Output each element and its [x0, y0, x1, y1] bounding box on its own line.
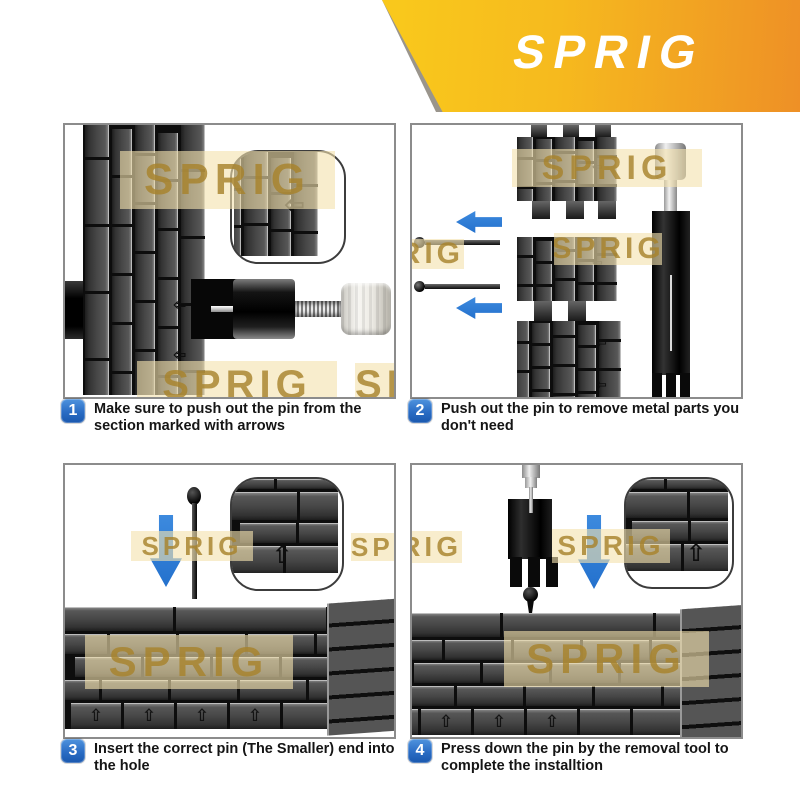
engraved-arrow-icon: ⇧ [272, 543, 292, 567]
link-remover-threaded-shaft [295, 301, 341, 317]
step-1-text: Make sure to push out the pin from the s… [94, 399, 396, 435]
pin-pusher-needle [529, 487, 533, 513]
band-angled-section [327, 598, 396, 735]
pin-pusher-prong [680, 373, 690, 397]
watermark: SPRIG [355, 363, 396, 399]
instruction-infographic: SPRIG ⇦ ⇦ ⇦ SPRIG SPRIG SPRIG [0, 0, 800, 800]
pin-pusher-prong [652, 373, 662, 397]
watermark: SPRIG [410, 239, 464, 269]
step-4-caption: 4 Press down the pin by the removal tool… [408, 739, 743, 775]
watermark: SPRIG [552, 529, 670, 563]
step-2-panel: ⇦ ⇦ ⇦ ⇦ SPRIG SPRI [410, 123, 743, 399]
watermark: SPRIG [120, 151, 335, 209]
link-remover-knob [341, 283, 391, 335]
blue-arrow-left-icon [456, 297, 502, 319]
brand-logo: SPRIG [509, 24, 711, 79]
engraved-arrow-icon: ⇦ [596, 379, 607, 392]
engraved-arrow-icon: ⇧ [686, 541, 706, 565]
pin-stem [425, 284, 500, 289]
step-4-text: Press down the pin by the removal tool t… [441, 739, 743, 775]
step-2-badge: 2 [408, 399, 432, 423]
watermark: SPRIG [351, 533, 396, 561]
step-4-panel: ⇧ ⇧⇧⇧⇧ SPRIG SPRIG SPRIG [410, 463, 743, 739]
step-4-badge: 4 [408, 739, 432, 763]
step-2-text: Push out the pin to remove metal parts y… [441, 399, 743, 435]
step-3-caption: 3 Insert the correct pin (The Smaller) e… [61, 739, 396, 775]
step-3-text: Insert the correct pin (The Smaller) end… [94, 739, 396, 775]
watermark: SPRIG [504, 631, 709, 687]
watermark: SPRIG [85, 635, 293, 689]
pin-pusher-needle [670, 275, 672, 351]
blue-arrow-left-icon [456, 211, 502, 233]
engraved-arrow-icon: ⇦ [173, 297, 186, 313]
step-1-panel: ⇦ ⇦ ⇦ SPRIG SPRIG SPRIG [63, 123, 396, 399]
step-1-badge: 1 [61, 399, 85, 423]
brand-banner: SPRIG [382, 0, 800, 112]
pin-pusher-prong [510, 557, 522, 587]
pin-pusher-prong [528, 557, 540, 587]
watermark: SPRIG [554, 233, 662, 265]
watermark: SPRIG [137, 361, 337, 399]
pin-pusher-prong [666, 373, 676, 397]
watch-lug [65, 281, 83, 339]
step-2-caption: 2 Push out the pin to remove metal parts… [408, 399, 743, 435]
step-3-badge: 3 [61, 739, 85, 763]
watermark: SPRIG [410, 531, 462, 563]
pin-head [414, 281, 425, 292]
engraved-arrow-icon: ⇦ [596, 337, 607, 350]
step-1-caption: 1 Make sure to push out the pin from the… [61, 399, 396, 435]
spare-pin [414, 281, 500, 292]
watermark: SPRIG [131, 531, 253, 561]
link-remover-body [233, 279, 295, 339]
watermark: SPRIG [512, 149, 702, 187]
step-3-panel: ⇧ ⇧⇧⇧⇧ SPRIG SPRIG SPRIG [63, 463, 396, 739]
